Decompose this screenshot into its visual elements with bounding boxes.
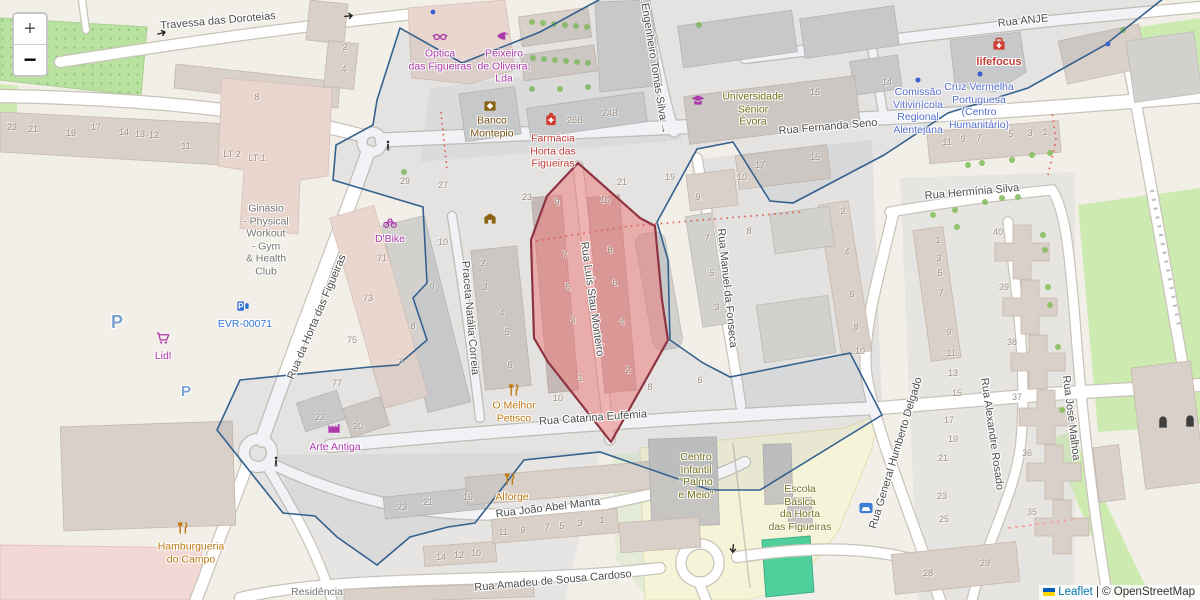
attribution-separator: |: [1093, 586, 1102, 598]
zoom-control: + −: [12, 12, 48, 77]
ukraine-flag-icon: [1043, 588, 1055, 596]
zoom-in-button[interactable]: +: [14, 14, 46, 44]
attribution-bar: Leaflet | © OpenStreetMap: [1039, 585, 1200, 600]
map-tiles: [0, 0, 1200, 600]
map-canvas[interactable]: Travessa das DoroteiasRua ANJERua Fernan…: [0, 0, 1200, 600]
zoom-out-button[interactable]: −: [14, 44, 46, 75]
openstreetmap-link[interactable]: © OpenStreetMap: [1102, 586, 1195, 598]
leaflet-link[interactable]: Leaflet: [1058, 586, 1093, 598]
